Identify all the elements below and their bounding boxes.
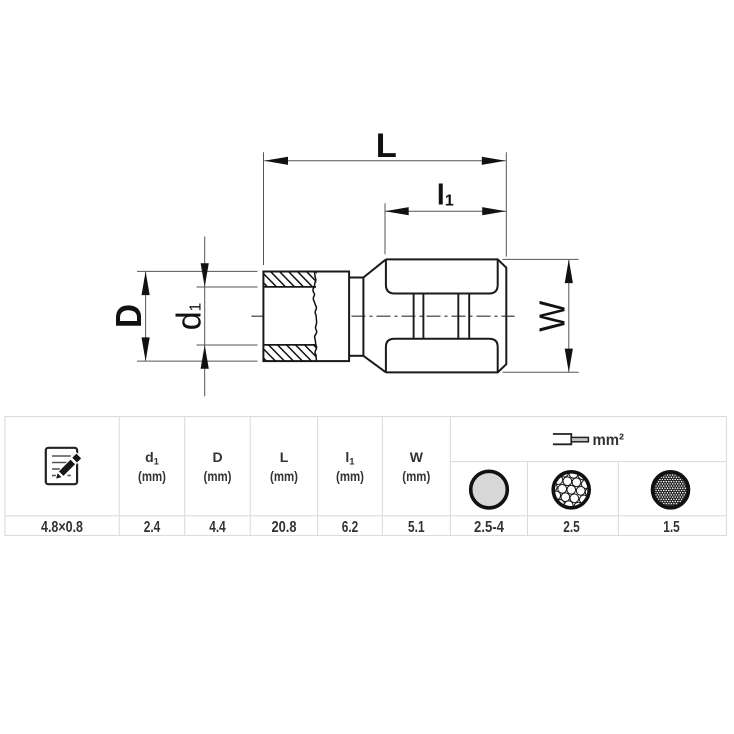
svg-text:2.4: 2.4 bbox=[144, 519, 161, 536]
svg-text:4.8×0.8: 4.8×0.8 bbox=[41, 519, 83, 536]
svg-text:L: L bbox=[280, 449, 289, 465]
svg-text:mm²: mm² bbox=[593, 432, 625, 449]
svg-text:(mm): (mm) bbox=[270, 468, 298, 484]
svg-text:W: W bbox=[410, 449, 424, 465]
svg-text:(mm): (mm) bbox=[204, 468, 232, 484]
svg-text:2.5: 2.5 bbox=[563, 519, 580, 536]
svg-text:l1: l1 bbox=[437, 180, 454, 212]
svg-text:(mm): (mm) bbox=[402, 468, 430, 484]
svg-text:6.2: 6.2 bbox=[342, 519, 359, 536]
svg-text:W: W bbox=[532, 301, 573, 332]
svg-text:L: L bbox=[376, 127, 397, 165]
svg-text:20.8: 20.8 bbox=[272, 519, 297, 536]
svg-text:5.1: 5.1 bbox=[408, 519, 425, 536]
svg-text:1.5: 1.5 bbox=[663, 519, 680, 536]
svg-text:d1: d1 bbox=[171, 303, 209, 331]
svg-text:4.4: 4.4 bbox=[209, 519, 226, 536]
svg-text:D: D bbox=[212, 449, 222, 465]
svg-text:(mm): (mm) bbox=[336, 468, 364, 484]
svg-text:(mm): (mm) bbox=[138, 468, 166, 484]
svg-text:D: D bbox=[108, 304, 149, 328]
svg-text:d1: d1 bbox=[145, 449, 160, 468]
svg-text:2.5-4: 2.5-4 bbox=[474, 519, 504, 536]
svg-text:l1: l1 bbox=[345, 449, 355, 468]
